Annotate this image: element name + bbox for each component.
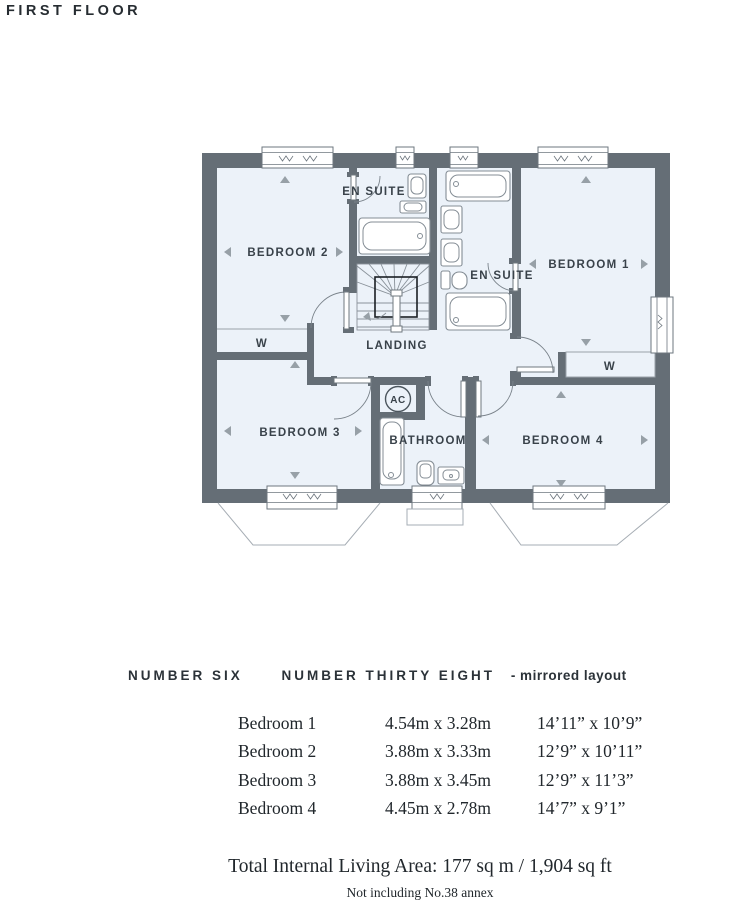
- stair-handrail: [393, 293, 400, 330]
- annex-note: Not including No.38 annex: [104, 885, 736, 901]
- metric-dimensions-cell: 4.54m x 3.28m: [385, 709, 537, 737]
- floor-plan: BEDROOM 2 BEDROOM 1 BEDROOM 3 BEDROOM 4 …: [0, 0, 736, 580]
- bathroom-window: [412, 486, 462, 509]
- bedroom-2-label: BEDROOM 2: [247, 247, 328, 259]
- bedroom1-window: [538, 147, 608, 168]
- wardrobe-1-label: W: [256, 338, 268, 350]
- ensuite-2-label: EN SUITE: [470, 270, 533, 282]
- bathroom-label: BATHROOM: [389, 435, 466, 447]
- imperial-dimensions-cell: 12’9” x 11’3”: [537, 766, 642, 794]
- bedroom-3-label: BEDROOM 3: [259, 427, 340, 439]
- bedroom3-window: [267, 486, 337, 509]
- ensuite1-window: [396, 147, 414, 168]
- toilet-fixture: [441, 271, 450, 289]
- bedroom-1-label: BEDROOM 1: [548, 259, 629, 271]
- bedroom4-window: [533, 486, 605, 509]
- room-name-cell: Bedroom 1: [238, 709, 385, 737]
- airing-cupboard-label: AC: [390, 395, 405, 406]
- dimensions-table: Bedroom 1 4.54m x 3.28m 14’11” x 10’9” B…: [238, 709, 642, 823]
- bedroom2-window: [262, 147, 333, 168]
- bedroom4-door: [476, 381, 481, 417]
- imperial-dimensions-cell: 12’9” x 10’11”: [537, 737, 642, 765]
- bedroom1-side-window: [651, 297, 673, 353]
- mirrored-layout-note: - mirrored layout: [511, 668, 627, 683]
- wardrobe-2-label: W: [604, 361, 616, 373]
- bathroom-door: [461, 381, 466, 417]
- bedroom2-door: [344, 292, 349, 329]
- bedroom3-door: [334, 378, 371, 383]
- totals-block: Total Internal Living Area: 177 sq m / 1…: [104, 856, 736, 901]
- bath-fixture: [446, 293, 510, 330]
- total-area: Total Internal Living Area: 177 sq m / 1…: [104, 856, 736, 878]
- bedroom-4-label: BEDROOM 4: [522, 435, 603, 447]
- room-name-cell: Bedroom 3: [238, 766, 385, 794]
- metric-dimensions-cell: 3.88m x 3.45m: [385, 766, 537, 794]
- room-name-cell: Bedroom 4: [238, 794, 385, 822]
- imperial-dimensions-cell: 14’11” x 10’9”: [537, 709, 642, 737]
- ensuite-1-label: EN SUITE: [342, 186, 405, 198]
- imperial-dimensions-cell: 14’7” x 9’1”: [537, 794, 642, 822]
- bedroom1-door: [517, 367, 554, 372]
- plot-name-number-thirty-eight: NUMBER THIRTY EIGHT: [282, 668, 496, 683]
- bath-fixture: [359, 218, 430, 254]
- plot-heading: NUMBER SIX NUMBER THIRTY EIGHT - mirrore…: [128, 668, 627, 683]
- plot-name-number-six: NUMBER SIX: [128, 668, 243, 683]
- metric-dimensions-cell: 4.45m x 2.78m: [385, 794, 537, 822]
- ensuite2-window: [450, 147, 478, 168]
- room-name-cell: Bedroom 2: [238, 737, 385, 765]
- metric-dimensions-cell: 3.88m x 3.33m: [385, 737, 537, 765]
- landing-label: LANDING: [366, 340, 428, 352]
